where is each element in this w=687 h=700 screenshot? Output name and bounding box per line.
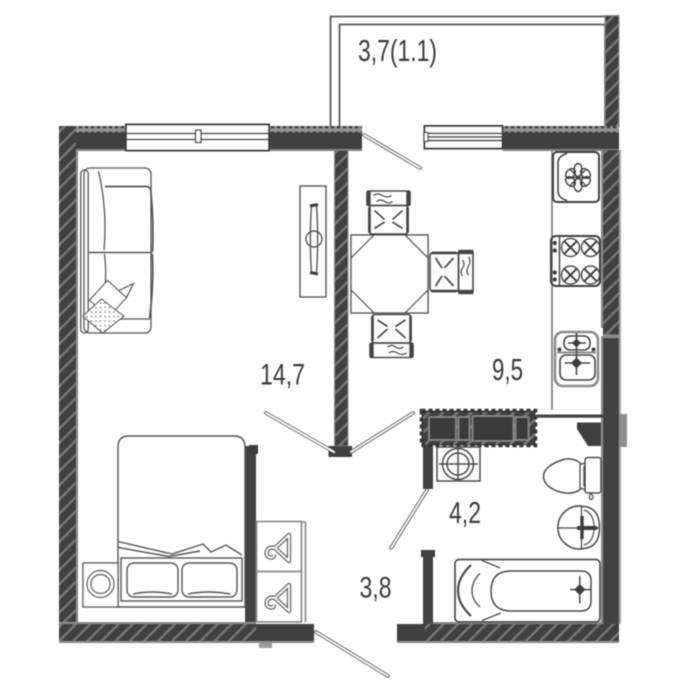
svg-text:3,7(1.1): 3,7(1.1) [358, 33, 437, 68]
svg-text:3,8: 3,8 [360, 572, 392, 605]
svg-text:9,5: 9,5 [492, 352, 523, 387]
svg-text:14,7: 14,7 [260, 359, 305, 392]
svg-text:4,2: 4,2 [449, 495, 481, 530]
